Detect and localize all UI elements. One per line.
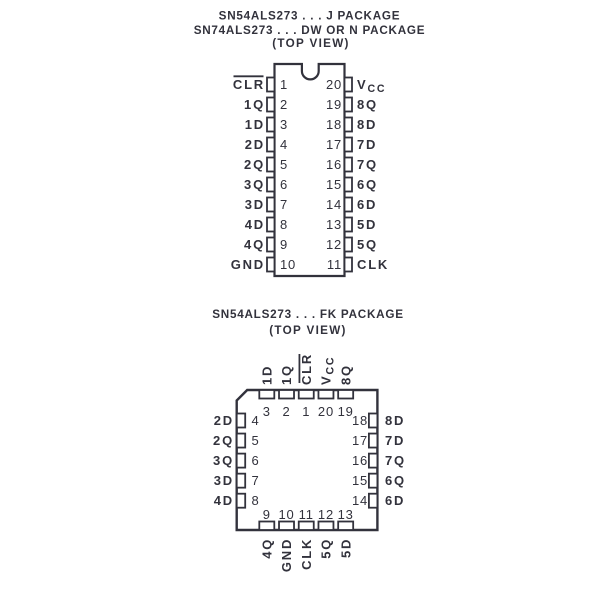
svg-text:9: 9 bbox=[263, 507, 271, 522]
svg-text:5: 5 bbox=[280, 157, 288, 172]
svg-text:(TOP VIEW): (TOP VIEW) bbox=[272, 37, 350, 50]
svg-text:8Q: 8Q bbox=[338, 364, 353, 385]
svg-text:8: 8 bbox=[252, 493, 260, 508]
svg-text:19: 19 bbox=[326, 97, 342, 112]
svg-text:11: 11 bbox=[299, 507, 314, 522]
svg-text:11: 11 bbox=[327, 257, 342, 272]
svg-text:6: 6 bbox=[280, 177, 288, 192]
svg-text:GND: GND bbox=[231, 257, 265, 272]
svg-text:2D: 2D bbox=[214, 413, 234, 428]
svg-text:10: 10 bbox=[280, 257, 296, 272]
svg-text:2Q: 2Q bbox=[213, 433, 234, 448]
svg-text:2Q: 2Q bbox=[244, 157, 265, 172]
svg-text:15: 15 bbox=[326, 177, 342, 192]
svg-text:3D: 3D bbox=[245, 197, 265, 212]
svg-text:18: 18 bbox=[352, 413, 368, 428]
svg-text:20: 20 bbox=[326, 77, 342, 92]
svg-text:8: 8 bbox=[280, 217, 288, 232]
svg-text:16: 16 bbox=[326, 157, 342, 172]
svg-text:14: 14 bbox=[326, 197, 342, 212]
svg-text:5D: 5D bbox=[338, 538, 353, 558]
svg-text:CLK: CLK bbox=[299, 538, 314, 570]
svg-text:8Q: 8Q bbox=[357, 97, 378, 112]
svg-text:5: 5 bbox=[252, 433, 260, 448]
svg-text:4Q: 4Q bbox=[244, 237, 265, 252]
svg-text:SN54ALS273 . . . FK PACKAGE: SN54ALS273 . . . FK PACKAGE bbox=[212, 308, 404, 321]
svg-text:15: 15 bbox=[352, 473, 368, 488]
svg-text:12: 12 bbox=[326, 237, 342, 252]
svg-text:(TOP VIEW): (TOP VIEW) bbox=[269, 324, 347, 337]
svg-text:4: 4 bbox=[280, 137, 288, 152]
svg-text:GND: GND bbox=[279, 538, 294, 572]
svg-text:CLK: CLK bbox=[357, 257, 389, 272]
svg-text:6D: 6D bbox=[385, 493, 405, 508]
svg-text:3Q: 3Q bbox=[244, 177, 265, 192]
svg-text:1Q: 1Q bbox=[244, 97, 265, 112]
svg-text:4D: 4D bbox=[245, 217, 265, 232]
svg-text:5Q: 5Q bbox=[319, 538, 334, 559]
svg-text:1: 1 bbox=[302, 404, 310, 419]
svg-text:18: 18 bbox=[326, 117, 342, 132]
svg-text:17: 17 bbox=[326, 137, 342, 152]
svg-text:4D: 4D bbox=[214, 493, 234, 508]
svg-text:1D: 1D bbox=[259, 365, 274, 385]
svg-text:3D: 3D bbox=[214, 473, 234, 488]
svg-text:20: 20 bbox=[318, 404, 334, 419]
svg-text:16: 16 bbox=[352, 453, 368, 468]
svg-text:7D: 7D bbox=[357, 137, 377, 152]
svg-text:6D: 6D bbox=[357, 197, 377, 212]
svg-text:2: 2 bbox=[280, 97, 288, 112]
svg-text:3: 3 bbox=[263, 404, 271, 419]
svg-text:7Q: 7Q bbox=[357, 157, 378, 172]
svg-text:7: 7 bbox=[252, 473, 260, 488]
svg-text:14: 14 bbox=[352, 493, 368, 508]
svg-text:SN74ALS273 . . . DW OR N PACKA: SN74ALS273 . . . DW OR N PACKAGE bbox=[194, 24, 426, 37]
svg-text:7Q: 7Q bbox=[385, 453, 406, 468]
svg-text:CLR: CLR bbox=[233, 77, 265, 92]
svg-text:1: 1 bbox=[280, 77, 288, 92]
svg-text:13: 13 bbox=[338, 507, 354, 522]
svg-text:7D: 7D bbox=[385, 433, 405, 448]
svg-text:1Q: 1Q bbox=[279, 364, 294, 385]
svg-text:6: 6 bbox=[252, 453, 260, 468]
svg-text:CLR: CLR bbox=[299, 353, 314, 385]
svg-text:3: 3 bbox=[280, 117, 288, 132]
svg-text:1D: 1D bbox=[245, 117, 265, 132]
svg-text:6Q: 6Q bbox=[385, 473, 406, 488]
svg-text:6Q: 6Q bbox=[357, 177, 378, 192]
svg-text:SN54ALS273 . . . J PACKAGE: SN54ALS273 . . . J PACKAGE bbox=[219, 9, 401, 22]
svg-text:4Q: 4Q bbox=[259, 538, 274, 559]
svg-text:8D: 8D bbox=[385, 413, 405, 428]
svg-text:5Q: 5Q bbox=[357, 237, 378, 252]
svg-text:17: 17 bbox=[352, 433, 368, 448]
svg-text:10: 10 bbox=[278, 507, 294, 522]
svg-text:13: 13 bbox=[326, 217, 342, 232]
svg-text:2: 2 bbox=[283, 404, 291, 419]
svg-text:4: 4 bbox=[252, 413, 260, 428]
svg-text:8D: 8D bbox=[357, 117, 377, 132]
svg-text:7: 7 bbox=[280, 197, 288, 212]
svg-text:5D: 5D bbox=[357, 217, 377, 232]
svg-text:9: 9 bbox=[280, 237, 288, 252]
svg-text:3Q: 3Q bbox=[213, 453, 234, 468]
svg-text:12: 12 bbox=[318, 507, 334, 522]
svg-text:2D: 2D bbox=[245, 137, 265, 152]
